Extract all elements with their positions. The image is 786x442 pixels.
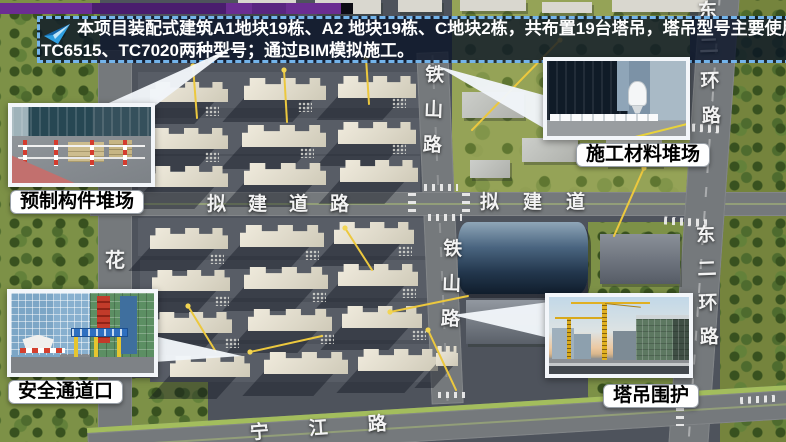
crosswalk bbox=[438, 392, 468, 398]
safety-passage-callout bbox=[7, 289, 158, 377]
residential-building-block bbox=[338, 122, 416, 144]
precast-yard-photo bbox=[12, 107, 151, 183]
road-label-char: 宁 bbox=[249, 423, 269, 442]
residential-building-block bbox=[342, 306, 422, 328]
residential-building-block bbox=[358, 349, 438, 371]
residential-building-block bbox=[244, 267, 328, 289]
road-label-char: 拟 bbox=[480, 193, 499, 212]
unit-marker-dots bbox=[210, 254, 224, 264]
road-label-char: 花 bbox=[105, 252, 125, 271]
road-label-char: 山 bbox=[424, 101, 444, 121]
bim-site-plan-slide: 铁 山 路 铁 山 路 拟 建 道 路 拟 建 道 花 东 二 环 路 东 二 … bbox=[0, 0, 786, 442]
road-label-char: 江 bbox=[308, 419, 328, 439]
existing-building bbox=[612, 0, 668, 12]
residential-building-block bbox=[334, 222, 414, 244]
road-label-char: 路 bbox=[422, 136, 442, 156]
residential-building-block bbox=[338, 264, 418, 286]
unit-marker-dots bbox=[312, 292, 326, 302]
warehouse-gray-east bbox=[600, 234, 680, 284]
safety-passage-photo bbox=[11, 293, 154, 373]
precast-yard-callout bbox=[8, 103, 155, 187]
crane-enclosure-photo bbox=[549, 297, 689, 374]
road-label-char: 山 bbox=[442, 275, 462, 295]
precast-yard-label: 预制构件堆场 bbox=[10, 190, 144, 214]
road-label-char: 环 bbox=[698, 294, 718, 314]
material-yard-photo bbox=[547, 61, 686, 136]
residential-building-block bbox=[242, 125, 326, 147]
road-label-tieshan-upper: 铁 山 路 bbox=[422, 66, 444, 156]
unit-marker-dots bbox=[298, 102, 312, 112]
residential-building-block bbox=[148, 128, 228, 149]
material-yard-label: 施工材料堆场 bbox=[576, 143, 710, 167]
road-label-proposed-left: 拟 建 道 路 bbox=[207, 195, 349, 214]
unit-marker-dots bbox=[412, 330, 426, 340]
existing-building bbox=[462, 92, 524, 118]
residential-building-block bbox=[340, 160, 418, 182]
existing-building bbox=[398, 0, 442, 12]
road-label-char: 拟 bbox=[207, 195, 226, 214]
road-label-char: 路 bbox=[699, 328, 719, 348]
road-label-char: 东 bbox=[696, 226, 716, 246]
existing-building bbox=[460, 0, 526, 11]
road-label-char: 道 bbox=[289, 195, 308, 214]
factory-blue-hall bbox=[458, 222, 588, 294]
residential-building-block bbox=[152, 270, 230, 291]
tower-crane-base bbox=[190, 63, 195, 68]
road-label-char: 路 bbox=[702, 107, 722, 127]
crosswalk bbox=[424, 184, 458, 191]
residential-building-block bbox=[154, 312, 232, 333]
existing-building bbox=[470, 160, 510, 178]
unit-marker-dots bbox=[392, 144, 406, 154]
road-label-char: 铁 bbox=[443, 240, 463, 260]
residential-building-block bbox=[240, 225, 324, 247]
purple-accent-bar-end bbox=[341, 3, 353, 14]
crane-enclosure-callout bbox=[545, 293, 693, 378]
road-label-hua: 花 bbox=[105, 252, 125, 271]
road-label-char: 铁 bbox=[425, 66, 445, 86]
residential-building-block bbox=[244, 163, 326, 185]
unit-marker-dots bbox=[402, 288, 416, 298]
unit-marker-dots bbox=[225, 338, 239, 348]
crosswalk bbox=[462, 193, 470, 215]
paper-plane-icon bbox=[43, 23, 71, 45]
residential-building-block bbox=[244, 78, 326, 100]
residential-building-block bbox=[248, 309, 332, 331]
unit-marker-dots bbox=[398, 246, 412, 256]
unit-marker-dots bbox=[205, 106, 219, 116]
road-label-char: 二 bbox=[697, 260, 717, 280]
safety-passage-label: 安全通道口 bbox=[8, 380, 123, 404]
road-label-char: 路 bbox=[440, 310, 460, 330]
road-label-char: 环 bbox=[700, 72, 720, 92]
residential-building-block bbox=[436, 346, 458, 366]
crane-enclosure-label: 塔吊围护 bbox=[603, 384, 699, 408]
banner-line-1: 本项目装配式建筑A1地块19栋、A2 地块19栋、C地块2栋，共布置19台塔吊，… bbox=[37, 16, 786, 39]
existing-building bbox=[542, 2, 592, 13]
road-label-char: 道 bbox=[566, 193, 585, 212]
purple-accent-bar-dark bbox=[252, 3, 286, 14]
road-label-proposed-right: 拟 建 道 bbox=[480, 193, 585, 212]
project-info-text: 本项目装配式建筑A1地块19栋、A2 地块19栋、C地块2栋，共布置19台塔吊，… bbox=[37, 16, 786, 63]
residential-building-block bbox=[150, 166, 228, 187]
residential-building-block bbox=[170, 356, 250, 377]
crosswalk bbox=[408, 193, 416, 215]
unit-marker-dots bbox=[305, 250, 319, 260]
road-label-char: 建 bbox=[248, 195, 267, 214]
residential-building-block bbox=[264, 352, 348, 374]
residential-building-block bbox=[150, 82, 228, 102]
unit-marker-dots bbox=[300, 148, 314, 158]
residential-building-block bbox=[338, 76, 416, 98]
crosswalk bbox=[428, 214, 462, 221]
unit-marker-dots bbox=[215, 296, 229, 306]
road-label-char: 建 bbox=[523, 193, 542, 212]
road-label-tieshan-lower: 铁 山 路 bbox=[440, 240, 462, 330]
residential-building-block bbox=[150, 228, 228, 249]
unit-marker-dots bbox=[320, 334, 334, 344]
road-label-char: 路 bbox=[330, 195, 349, 214]
purple-accent-bar-dark bbox=[92, 3, 226, 14]
road-label-char: 路 bbox=[367, 414, 387, 434]
material-yard-callout bbox=[543, 57, 690, 140]
unit-marker-dots bbox=[392, 98, 406, 108]
unit-marker-dots bbox=[205, 152, 219, 162]
existing-building bbox=[522, 138, 578, 162]
